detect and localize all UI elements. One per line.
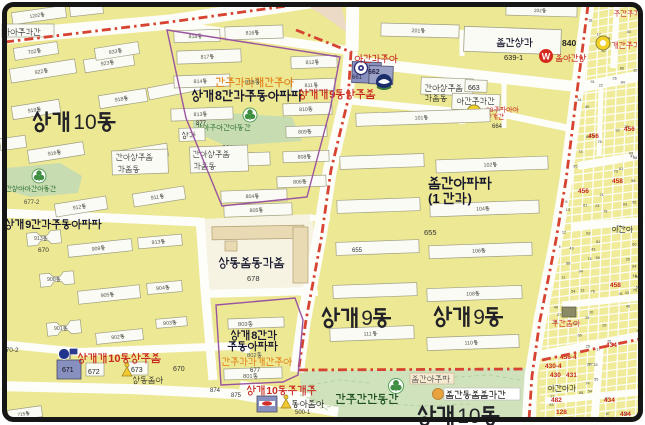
svg-text:202: 202: [534, 8, 542, 14]
svg-text:500-1: 500-1: [295, 410, 311, 416]
svg-text:50: 50: [596, 256, 600, 260]
svg-text:456: 456: [624, 126, 635, 133]
svg-text:76: 76: [598, 140, 602, 144]
svg-text:434: 434: [620, 411, 631, 418]
svg-text:20: 20: [589, 310, 593, 314]
svg-text:908: 908: [47, 277, 56, 283]
svg-text:678: 678: [247, 274, 260, 283]
svg-text:92: 92: [616, 129, 620, 133]
svg-text:73: 73: [578, 150, 582, 154]
svg-text:801: 801: [243, 374, 253, 380]
svg-text:840: 840: [562, 38, 576, 48]
svg-text:104: 104: [476, 206, 485, 212]
svg-text:812: 812: [306, 60, 315, 66]
svg-text:111: 111: [364, 331, 372, 337]
svg-text:810: 810: [299, 107, 308, 113]
svg-text:49: 49: [554, 305, 558, 309]
svg-text:27: 27: [557, 313, 561, 317]
svg-text:875: 875: [231, 393, 242, 399]
svg-text:8: 8: [251, 330, 257, 342]
svg-text:55: 55: [579, 391, 583, 395]
svg-text:662: 662: [368, 69, 380, 76]
svg-text:84: 84: [632, 264, 636, 268]
svg-text:76: 76: [591, 289, 595, 293]
svg-text:661: 661: [352, 75, 363, 81]
svg-text:91: 91: [591, 80, 595, 84]
svg-text:110: 110: [465, 340, 474, 346]
svg-text:37: 37: [587, 363, 591, 367]
svg-text:803: 803: [238, 322, 248, 328]
svg-text:101: 101: [415, 115, 424, 121]
svg-text:W: W: [542, 52, 551, 62]
svg-text:29: 29: [626, 258, 630, 262]
svg-text:904: 904: [156, 285, 165, 292]
svg-text:95: 95: [631, 179, 635, 183]
svg-text:61: 61: [619, 167, 623, 171]
svg-text:10: 10: [266, 385, 278, 397]
svg-text:88: 88: [566, 262, 570, 266]
svg-text:655: 655: [352, 248, 363, 254]
svg-text:74: 74: [573, 322, 577, 326]
svg-text:63: 63: [586, 232, 590, 236]
svg-text:903: 903: [163, 320, 172, 327]
svg-text:33: 33: [593, 363, 597, 367]
svg-text:(1: (1: [428, 191, 440, 206]
svg-text:60: 60: [578, 334, 582, 338]
svg-text:93: 93: [623, 203, 627, 207]
svg-text:61: 61: [583, 204, 587, 208]
svg-text:86: 86: [620, 67, 624, 71]
svg-text:21: 21: [600, 193, 604, 197]
svg-text:901: 901: [54, 326, 63, 332]
svg-text:902: 902: [111, 334, 120, 341]
svg-text:74: 74: [585, 381, 589, 385]
svg-text:10: 10: [73, 111, 96, 134]
svg-text:95: 95: [573, 164, 577, 168]
svg-text:877: 877: [196, 121, 207, 127]
svg-text:108: 108: [466, 291, 475, 297]
svg-text:54: 54: [571, 290, 575, 294]
svg-text:677-2: 677-2: [24, 200, 40, 206]
svg-text:81: 81: [596, 240, 600, 244]
svg-text:12: 12: [562, 231, 566, 235]
svg-text:25: 25: [586, 344, 590, 348]
svg-text:813: 813: [194, 112, 203, 118]
svg-text:41: 41: [619, 292, 623, 296]
svg-text:456: 456: [588, 133, 599, 140]
svg-text:905: 905: [100, 292, 109, 299]
svg-text:639-1: 639-1: [504, 53, 523, 62]
svg-text:54: 54: [588, 389, 592, 393]
svg-text:815: 815: [245, 80, 255, 86]
svg-text:55: 55: [594, 378, 598, 382]
svg-text:23: 23: [595, 204, 599, 208]
svg-text:434: 434: [604, 397, 615, 404]
svg-text:670: 670: [173, 366, 185, 373]
svg-text:811: 811: [305, 83, 314, 89]
svg-text:32: 32: [633, 69, 637, 73]
svg-text:68: 68: [629, 151, 633, 155]
svg-text:43: 43: [569, 246, 573, 250]
svg-text:663: 663: [468, 85, 480, 92]
svg-text:814: 814: [194, 79, 203, 85]
svg-text:60: 60: [632, 243, 636, 247]
svg-text:): ): [468, 191, 472, 206]
svg-text:67: 67: [606, 412, 610, 416]
svg-text:458: 458: [612, 178, 623, 185]
svg-text:43: 43: [591, 247, 595, 251]
svg-text:73: 73: [614, 169, 618, 173]
svg-text:13: 13: [566, 208, 570, 212]
svg-text:80: 80: [585, 105, 589, 109]
svg-text:9: 9: [25, 219, 31, 231]
svg-text:805: 805: [250, 208, 259, 214]
svg-text:9: 9: [473, 306, 485, 329]
svg-text:458: 458: [610, 282, 621, 289]
svg-text:8: 8: [215, 89, 222, 103]
svg-text:456: 456: [578, 188, 589, 195]
svg-text:671: 671: [62, 367, 74, 374]
svg-text:26: 26: [613, 76, 617, 80]
svg-text:809: 809: [298, 129, 307, 135]
svg-text:808: 808: [298, 154, 307, 160]
svg-text:10: 10: [108, 353, 120, 365]
svg-text:909: 909: [91, 246, 100, 253]
svg-text:34: 34: [627, 30, 631, 34]
svg-text:78: 78: [603, 210, 607, 214]
svg-text:655: 655: [424, 228, 437, 237]
svg-text:46: 46: [626, 305, 630, 309]
svg-text:43: 43: [625, 291, 629, 295]
svg-text:13: 13: [580, 289, 584, 293]
svg-text:804: 804: [246, 194, 255, 200]
svg-text:106: 106: [472, 248, 481, 254]
svg-text:913: 913: [34, 236, 43, 242]
svg-text:673: 673: [131, 367, 143, 374]
svg-text:430-4: 430-4: [545, 363, 562, 370]
svg-text:29: 29: [585, 316, 589, 320]
svg-text:102: 102: [484, 162, 493, 168]
svg-text:17: 17: [597, 33, 601, 37]
svg-text:75: 75: [633, 289, 637, 293]
svg-text:664: 664: [492, 124, 503, 130]
svg-text:874: 874: [210, 388, 221, 394]
svg-text:29: 29: [602, 324, 606, 328]
svg-text:34: 34: [577, 98, 581, 102]
svg-text:806: 806: [293, 179, 302, 185]
svg-text:94: 94: [579, 269, 583, 273]
svg-text:18: 18: [588, 18, 592, 22]
svg-text:84: 84: [621, 81, 625, 85]
svg-text:482: 482: [551, 397, 562, 404]
svg-text:670: 670: [38, 247, 49, 254]
svg-text:95: 95: [632, 200, 636, 204]
svg-text:22: 22: [599, 84, 603, 88]
svg-text:38: 38: [633, 156, 637, 160]
svg-text:431: 431: [566, 372, 577, 379]
svg-text:817: 817: [201, 54, 210, 60]
svg-text:672: 672: [88, 369, 100, 376]
svg-text:11: 11: [562, 276, 566, 280]
svg-text:9: 9: [361, 307, 373, 330]
svg-text:430: 430: [550, 372, 561, 379]
svg-text:201: 201: [412, 28, 421, 34]
svg-text:913: 913: [151, 239, 160, 246]
svg-text:816: 816: [246, 30, 255, 36]
svg-text:128: 128: [556, 409, 567, 416]
svg-text:74: 74: [587, 257, 591, 261]
